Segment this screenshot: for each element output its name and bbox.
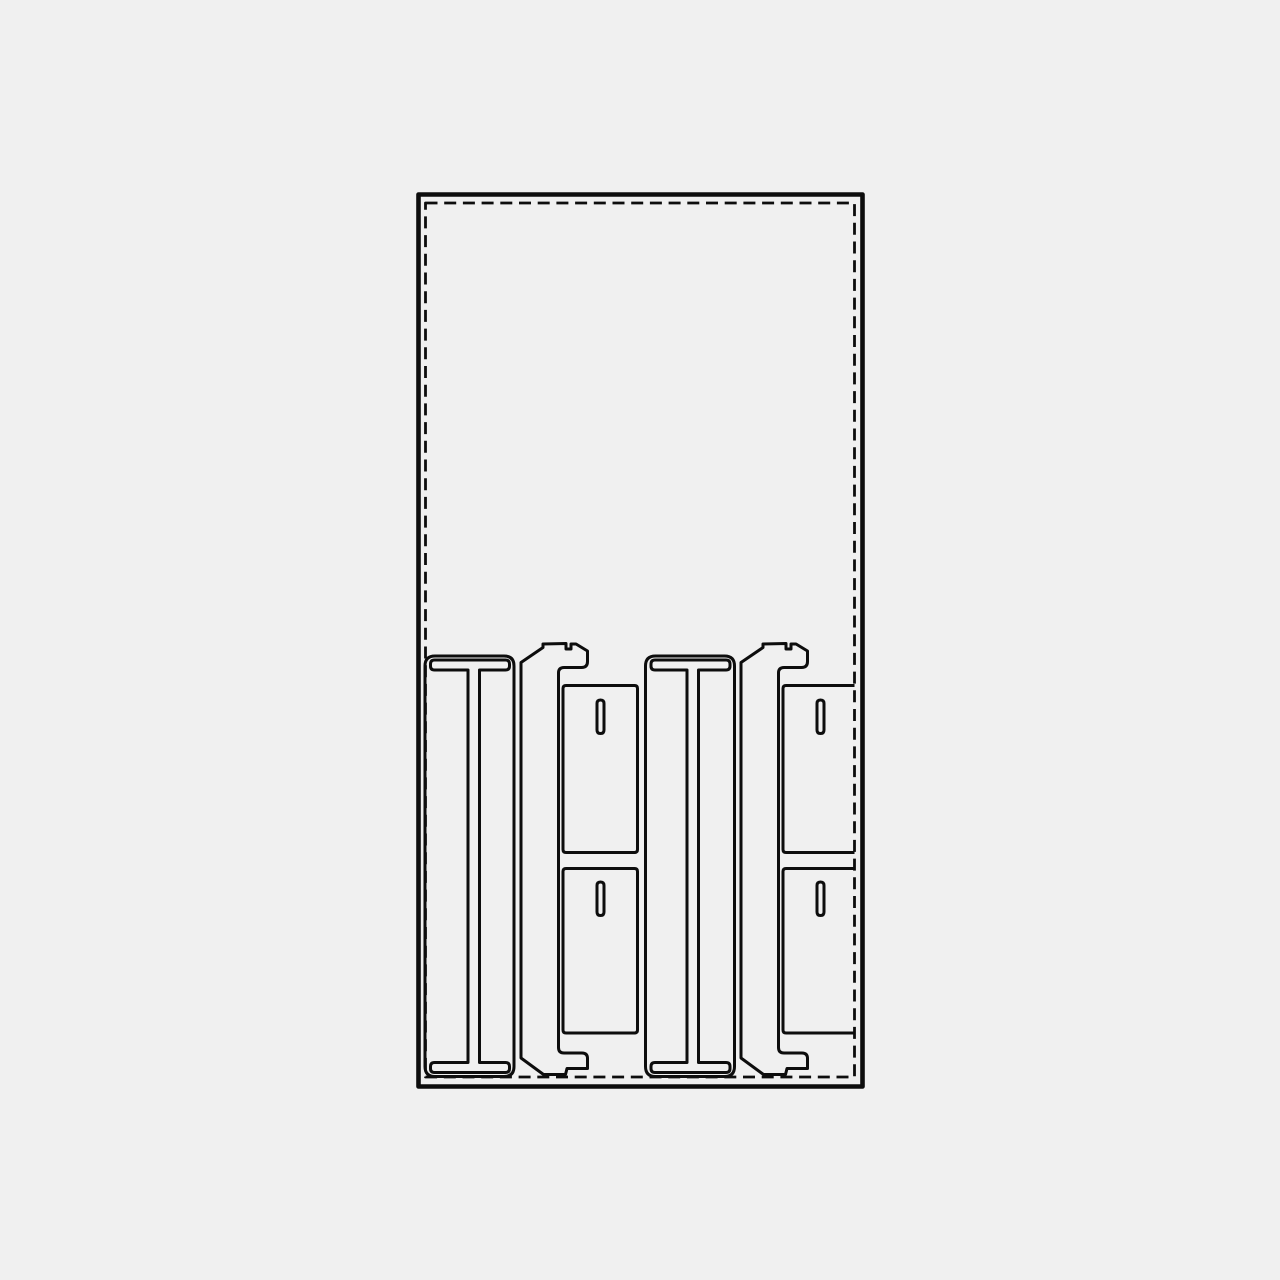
shelf-panel-1b-outline <box>563 869 638 1034</box>
shelf-panel-1a-outline <box>563 686 638 853</box>
sheet-margin-dashed <box>426 203 855 1077</box>
shelf-panel-2a-outline <box>783 686 855 853</box>
sheet-outer-border <box>419 195 863 1087</box>
cut-sheet-svg <box>0 0 1280 1280</box>
shelf-panel-1a-slot <box>597 700 604 734</box>
ibeam-panel-2-outline <box>646 656 735 1077</box>
shelf-panel-2b-slot <box>817 882 824 916</box>
hook-rail-1-outline <box>521 644 588 1075</box>
drawing-canvas <box>0 0 1280 1280</box>
shelf-panel-1b-slot <box>597 882 604 916</box>
shelf-panel-2b-outline <box>783 869 855 1034</box>
hook-rail-2-outline <box>741 644 808 1075</box>
ibeam-panel-1-tslot <box>431 660 510 1073</box>
shelf-panel-2a-slot <box>817 700 824 734</box>
ibeam-panel-2-tslot <box>651 660 730 1073</box>
